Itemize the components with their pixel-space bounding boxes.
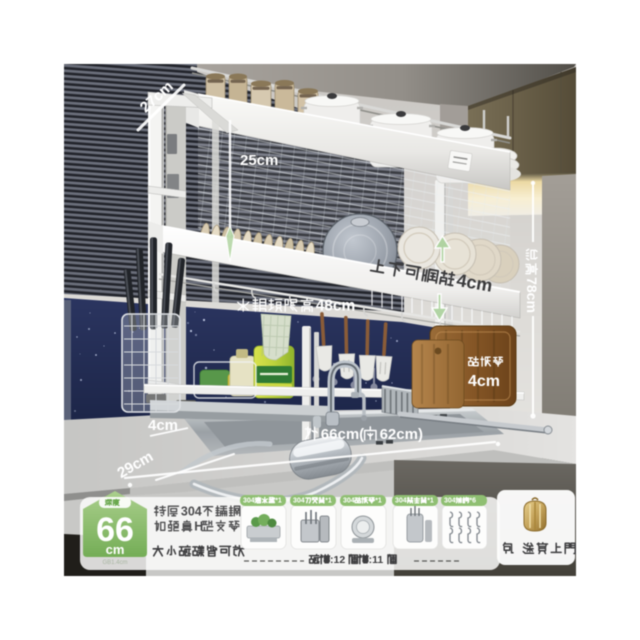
- svg-text:*6: *6: [469, 498, 476, 505]
- svg-text:66cm(: 66cm(: [321, 426, 364, 443]
- svg-text:304: 304: [243, 498, 255, 505]
- svg-text:48cm: 48cm: [316, 298, 356, 315]
- svg-text:GB1.4cm: GB1.4cm: [102, 560, 127, 566]
- svg-text:cm: cm: [106, 542, 125, 557]
- svg-text:4cm: 4cm: [148, 417, 178, 434]
- svg-text:25cm: 25cm: [240, 152, 278, 169]
- svg-text:304: 304: [343, 498, 355, 505]
- svg-text:78cm: 78cm: [524, 277, 540, 313]
- svg-text::11: :11: [369, 554, 384, 566]
- svg-text:*1: *1: [427, 498, 434, 505]
- svg-text::12: :12: [330, 554, 345, 566]
- svg-text:62cm): 62cm): [380, 426, 423, 443]
- svg-text:*1: *1: [275, 498, 282, 505]
- svg-text:304: 304: [293, 498, 305, 505]
- svg-text:4cm: 4cm: [468, 373, 500, 390]
- svg-text:304: 304: [444, 498, 456, 505]
- svg-text:304: 304: [395, 498, 407, 505]
- svg-text:*1: *1: [375, 498, 382, 505]
- svg-text:304: 304: [181, 504, 202, 518]
- svg-text:*1: *1: [325, 498, 332, 505]
